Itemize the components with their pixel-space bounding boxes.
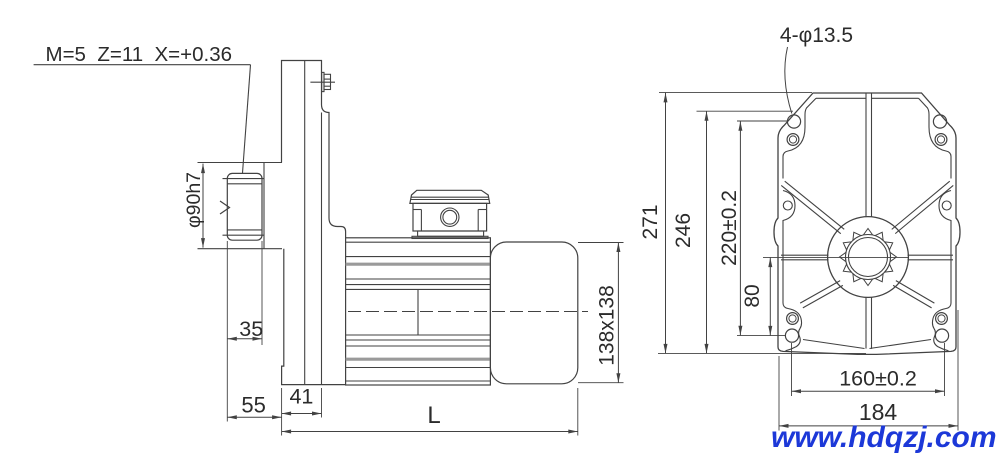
svg-text:L: L bbox=[427, 402, 440, 429]
svg-text:246: 246 bbox=[672, 213, 695, 248]
svg-text:M=5 Z=11 X=+0.36: M=5 Z=11 X=+0.36 bbox=[46, 43, 233, 66]
svg-text:55: 55 bbox=[241, 393, 265, 418]
svg-text:160±0.2: 160±0.2 bbox=[839, 367, 917, 391]
svg-text:138x138: 138x138 bbox=[596, 285, 619, 366]
svg-text:41: 41 bbox=[289, 385, 313, 409]
svg-text:80: 80 bbox=[741, 284, 764, 307]
svg-text:35: 35 bbox=[239, 317, 263, 341]
svg-text:4-φ13.5: 4-φ13.5 bbox=[780, 24, 853, 47]
svg-text:220±0.2: 220±0.2 bbox=[718, 190, 741, 266]
svg-text:271: 271 bbox=[639, 204, 662, 239]
svg-text:φ90h7: φ90h7 bbox=[183, 172, 205, 228]
svg-text:www.hdqzj.com: www.hdqzj.com bbox=[771, 421, 997, 454]
